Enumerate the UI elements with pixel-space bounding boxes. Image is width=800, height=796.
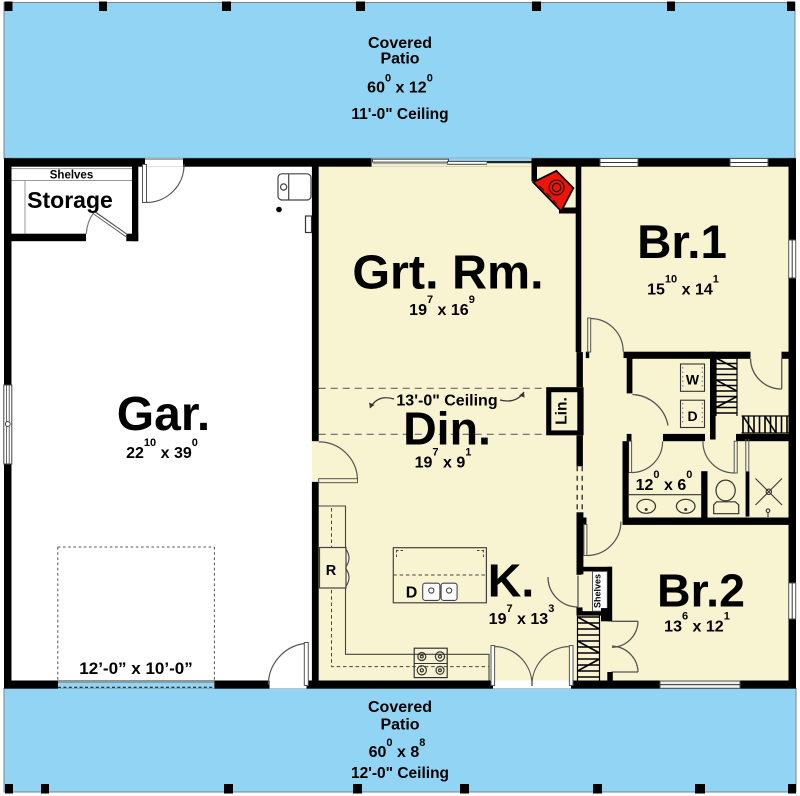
svg-text:Covered: Covered [368, 699, 432, 716]
svg-text:12’-0” x 10’-0”: 12’-0” x 10’-0” [79, 659, 192, 678]
svg-text:Shelves: Shelves [593, 574, 603, 608]
svg-text:12'-0" Ceiling: 12'-0" Ceiling [351, 765, 449, 782]
svg-text:Patio: Patio [380, 51, 419, 68]
svg-text:Grt. Rm.: Grt. Rm. [352, 246, 543, 300]
svg-text:D: D [687, 408, 697, 424]
svg-text:Storage: Storage [27, 187, 113, 213]
svg-text:W: W [686, 372, 700, 388]
svg-text:Shelves: Shelves [50, 170, 93, 182]
svg-text:Din.: Din. [403, 403, 491, 455]
svg-text:Patio: Patio [380, 717, 419, 734]
svg-text:Gar.: Gar. [117, 388, 210, 441]
svg-text:Br.2: Br.2 [657, 565, 745, 617]
svg-text:D: D [406, 585, 418, 602]
svg-text:Covered: Covered [368, 35, 432, 52]
svg-text:K.: K. [488, 555, 535, 607]
svg-text:R: R [326, 563, 337, 579]
svg-text:Lin.: Lin. [554, 397, 571, 425]
svg-text:Br.1: Br.1 [637, 216, 727, 269]
svg-text:11'-0" Ceiling: 11'-0" Ceiling [351, 106, 448, 123]
